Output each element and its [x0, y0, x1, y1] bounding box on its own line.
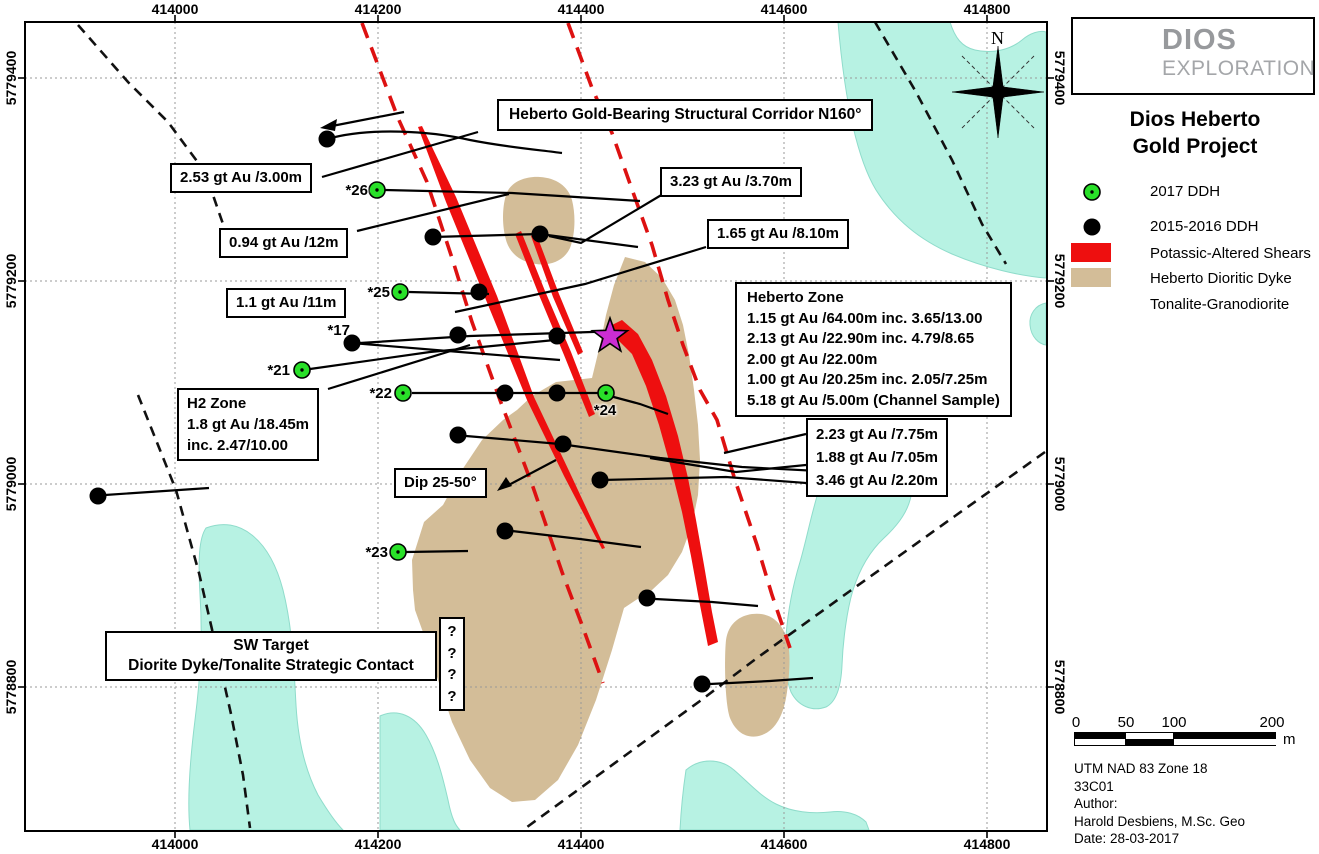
legend-label-2017-ddh: 2017 DDH [1150, 183, 1220, 200]
ddh-2017-icon [1082, 182, 1122, 202]
scalebar-tick-0: 0 [1072, 714, 1080, 731]
ddh-2015-2016-icon [1082, 217, 1122, 237]
axis-label-right-5778800: 5778800 [1052, 660, 1068, 715]
axis-label-bottom-414000: 414000 [152, 836, 199, 852]
axis-label-right-5779000: 5779000 [1052, 457, 1068, 512]
scalebar-tick-100: 100 [1161, 714, 1186, 731]
axis-label-left-5779400: 5779400 [3, 51, 19, 106]
legend-label-dyke: Heberto Dioritic Dyke [1150, 270, 1292, 287]
annotation-sw-target: SW Target Diorite Dyke/Tonalite Strategi… [105, 631, 437, 681]
annotation-heberto-zone: Heberto Zone 1.15 gt Au /64.00m inc. 3.6… [735, 282, 1012, 417]
annotation-question-marks: ? ? ? ? [439, 617, 465, 711]
ddh-label-25: *25 [342, 284, 390, 301]
axis-label-top-414000: 414000 [152, 1, 199, 17]
scalebar-tick-200: 200 [1259, 714, 1284, 731]
ddh-label-21: *21 [254, 362, 290, 379]
logo-name: DIOS [1162, 24, 1237, 57]
axis-label-top-414800: 414800 [964, 1, 1011, 17]
axis-label-bottom-414800: 414800 [964, 836, 1011, 852]
shears-swatch-icon [1071, 243, 1111, 262]
legend-label-tonalite: Tonalite-Granodiorite [1150, 296, 1289, 313]
north-label: N [991, 28, 1004, 49]
scalebar-tick-50: 50 [1118, 714, 1135, 731]
axis-label-top-414600: 414600 [761, 1, 808, 17]
annotation-dip: Dip 25-50° [394, 468, 487, 498]
scalebar-unit: m [1283, 731, 1296, 748]
annotation-h2-zone: H2 Zone 1.8 gt Au /18.45m inc. 2.47/10.0… [177, 388, 319, 461]
map-title: Dios Heberto Gold Project [1100, 106, 1290, 160]
axis-label-bottom-414400: 414400 [558, 836, 605, 852]
annotation-1-65: 1.65 gt Au /8.10m [707, 219, 849, 249]
annotation-1-1: 1.1 gt Au /11m [226, 288, 346, 318]
ddh-label-23: *23 [352, 544, 388, 561]
annotation-3-23: 3.23 gt Au /3.70m [660, 167, 802, 197]
scalebar [1074, 732, 1276, 746]
annotation-2-53: 2.53 gt Au /3.00m [170, 163, 312, 193]
axis-label-top-414200: 414200 [355, 1, 402, 17]
logo-subtitle: EXPLORATION [1162, 57, 1315, 81]
dyke-swatch-icon [1071, 268, 1111, 287]
map-credits: UTM NAD 83 Zone 18 33C01 Author: Harold … [1074, 760, 1245, 848]
map-sheet: 414000 414200 414400 414600 414800 41400… [0, 0, 1319, 854]
annotation-2-23: 2.23 gt Au /7.75m 1.88 gt Au /7.05m 3.46… [806, 418, 948, 497]
ddh-label-22: *22 [356, 385, 392, 402]
annotation-0-94: 0.94 gt Au /12m [219, 228, 348, 258]
ddh-label-24: *24 [585, 402, 625, 419]
ddh-label-17: *17 [316, 322, 350, 339]
axis-label-right-5779400: 5779400 [1052, 51, 1068, 106]
axis-label-right-5779200: 5779200 [1052, 254, 1068, 309]
ddh-label-26: *26 [322, 182, 368, 199]
annotation-corridor: Heberto Gold-Bearing Structural Corridor… [497, 99, 873, 131]
axis-label-left-5778800: 5778800 [3, 660, 19, 715]
axis-label-left-5779000: 5779000 [3, 457, 19, 512]
axis-label-top-414400: 414400 [558, 1, 605, 17]
axis-label-left-5779200: 5779200 [3, 254, 19, 309]
legend-label-2015-2016-ddh: 2015-2016 DDH [1150, 218, 1258, 235]
axis-label-bottom-414600: 414600 [761, 836, 808, 852]
legend-label-shears: Potassic-Altered Shears [1150, 245, 1311, 262]
axis-label-bottom-414200: 414200 [355, 836, 402, 852]
